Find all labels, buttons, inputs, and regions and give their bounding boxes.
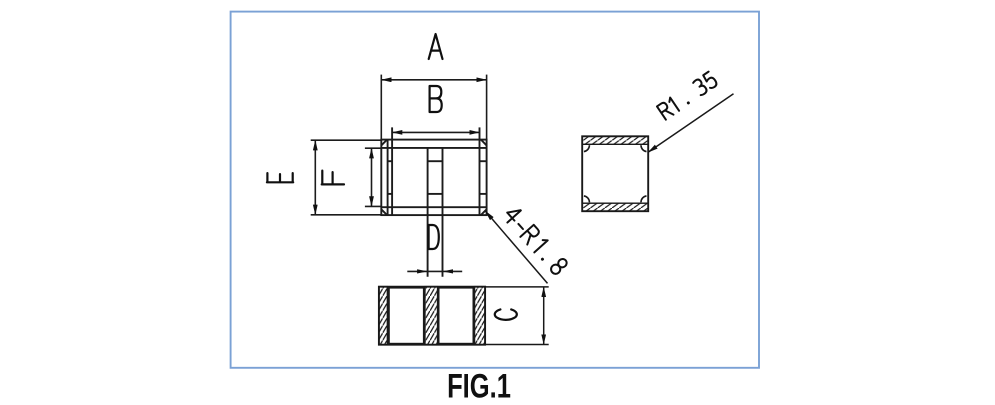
svg-text:FIG.1: FIG.1 (447, 368, 511, 400)
